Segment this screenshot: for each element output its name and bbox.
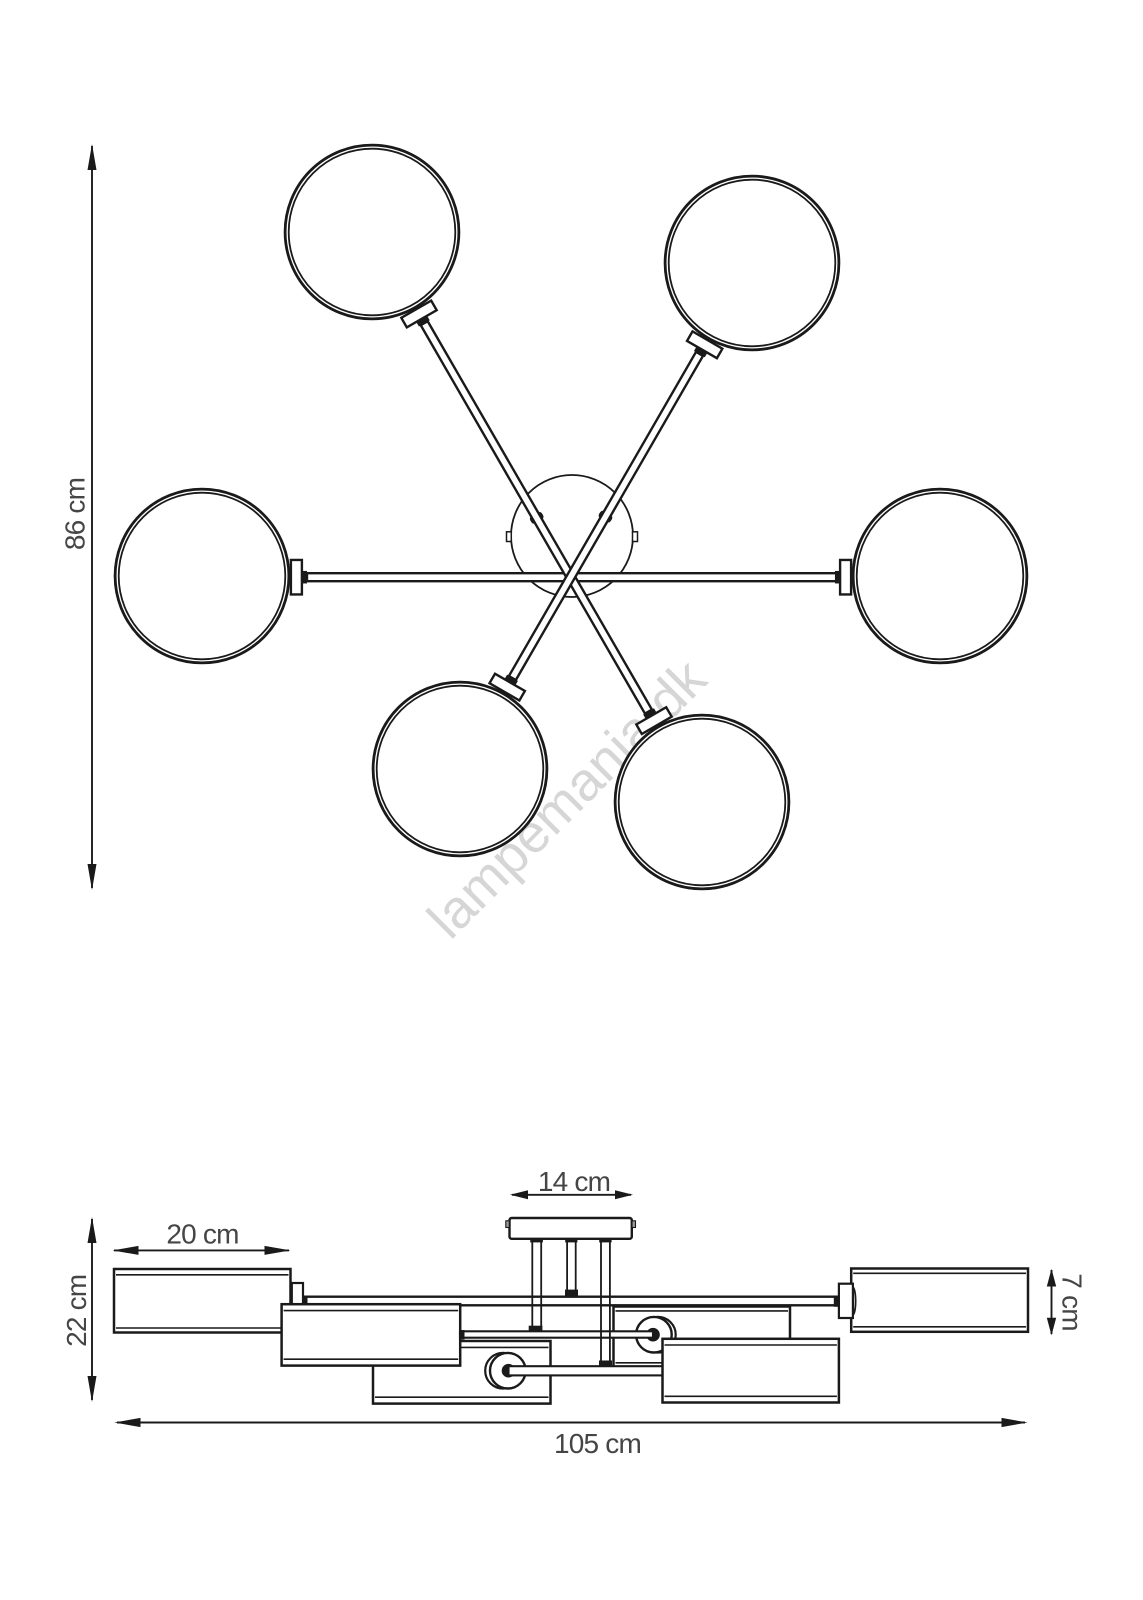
svg-text:14 cm: 14 cm bbox=[538, 1166, 610, 1197]
svg-text:86 cm: 86 cm bbox=[60, 478, 91, 550]
svg-text:105 cm: 105 cm bbox=[554, 1428, 641, 1459]
svg-text:22 cm: 22 cm bbox=[61, 1275, 92, 1347]
svg-text:20 cm: 20 cm bbox=[166, 1219, 238, 1250]
svg-text:7 cm: 7 cm bbox=[1057, 1273, 1088, 1330]
